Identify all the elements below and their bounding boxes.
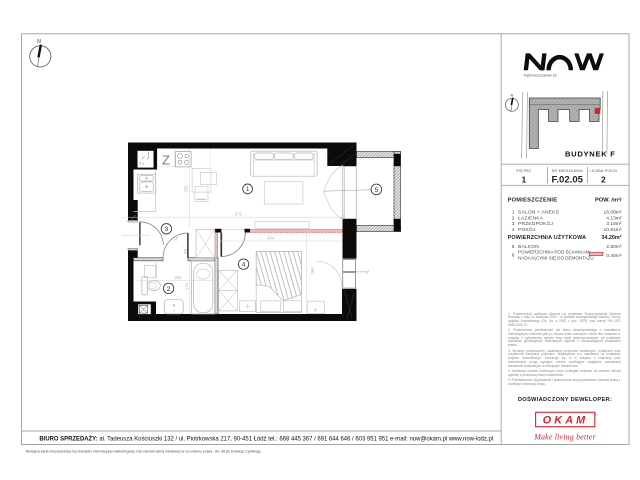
svg-text:16.08m²: 16.08m² bbox=[604, 209, 622, 215]
svg-text:SALON + ANEKS: SALON + ANEKS bbox=[518, 209, 560, 215]
svg-text:NADAJĄCYMI SIĘ DO DEMONTAŻU: NADAJĄCYMI SIĘ DO DEMONTAŻU bbox=[518, 255, 594, 261]
svg-text:2: 2 bbox=[512, 215, 515, 221]
svg-text:POMIESZCZENIE: POMIESZCZENIE bbox=[508, 197, 558, 203]
svg-text:34.20m²: 34.20m² bbox=[601, 235, 621, 241]
svg-text:BIURO SPRZEDAŻY: al. Tadeusza: BIURO SPRZEDAŻY: al. Tadeusza Kościuszki… bbox=[39, 436, 493, 443]
svg-text:6: 6 bbox=[512, 252, 515, 258]
svg-text:1: 1 bbox=[512, 209, 515, 215]
svg-text:4.13m²: 4.13m² bbox=[606, 215, 622, 221]
svg-text:10.81m²: 10.81m² bbox=[604, 227, 622, 233]
svg-text:Niniejsza karta mieszkaniowa m: Niniejsza karta mieszkaniowa ma charakte… bbox=[26, 449, 262, 453]
svg-text:DOŚWIADCZONY DEWELOPER:: DOŚWIADCZONY DEWELOPER: bbox=[518, 396, 612, 403]
svg-text:Make living better: Make living better bbox=[533, 433, 596, 442]
svg-text:3.18m²: 3.18m² bbox=[606, 221, 622, 227]
svg-text:0.40m²: 0.40m² bbox=[606, 253, 622, 259]
svg-text:POW. /m²/: POW. /m²/ bbox=[595, 196, 622, 203]
svg-text:5: 5 bbox=[512, 244, 515, 250]
svg-text:POKÓJ: POKÓJ bbox=[518, 226, 536, 233]
svg-text:3: 3 bbox=[512, 221, 515, 227]
svg-text:4: 4 bbox=[512, 227, 515, 233]
svg-text:POWIERZCHNIA POD ŚCIANKAMI: POWIERZCHNIA POD ŚCIANKAMI bbox=[518, 248, 591, 255]
svg-text:PRZEDPOKÓJ: PRZEDPOKÓJ bbox=[518, 220, 554, 227]
svg-text:2.80m²: 2.80m² bbox=[606, 244, 622, 250]
svg-text:OKAM: OKAM bbox=[543, 414, 588, 426]
svg-text:®: ® bbox=[595, 412, 598, 416]
svg-text:ŁAZIENKA: ŁAZIENKA bbox=[518, 215, 544, 221]
svg-text:POWIERZCHNIA UŻYTKOWA: POWIERZCHNIA UŻYTKOWA bbox=[508, 234, 587, 241]
